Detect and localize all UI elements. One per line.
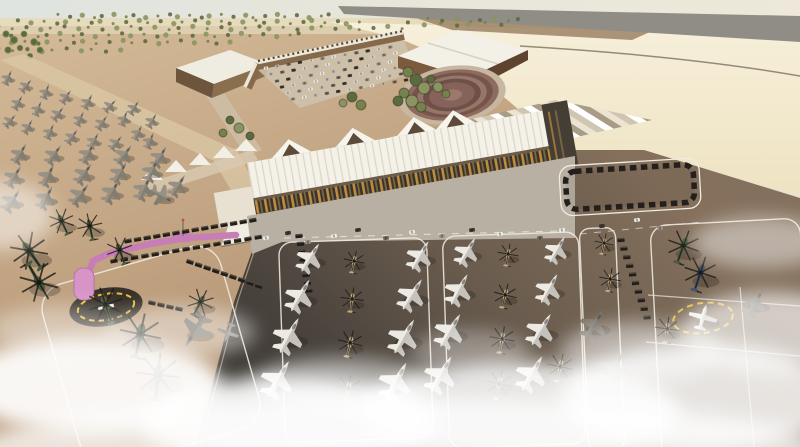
shrub-icon: [385, 24, 390, 29]
shrub-icon: [320, 25, 323, 28]
palm-tree-icon: [37, 47, 43, 53]
shrub-icon: [130, 41, 133, 44]
shrub-icon: [90, 21, 94, 25]
shrub-icon: [38, 27, 43, 32]
shrub-icon: [176, 26, 180, 30]
shrub-icon: [50, 49, 53, 52]
display-vehicle-icon: [626, 264, 633, 268]
car-icon: [599, 224, 605, 229]
shrub-icon: [56, 13, 59, 16]
shrub-icon: [206, 40, 209, 43]
shrub-icon: [118, 47, 123, 52]
shrub-icon: [16, 18, 20, 22]
tree-icon: [347, 92, 357, 102]
shrub-icon: [252, 16, 255, 19]
car-icon: [537, 236, 543, 241]
shrub-icon: [248, 34, 251, 37]
shrub-icon: [275, 12, 280, 17]
shrub-icon: [295, 28, 299, 32]
shrub-icon: [131, 13, 135, 17]
palm-tree-icon: [3, 31, 9, 37]
scene-canvas: [0, 0, 800, 447]
shrub-icon: [499, 23, 503, 27]
tree-icon: [339, 99, 347, 107]
shrub-icon: [143, 33, 146, 36]
shrub-icon: [79, 48, 84, 53]
shrub-icon: [484, 21, 487, 24]
shrub-icon: [323, 21, 326, 24]
shrub-icon: [125, 15, 128, 18]
shrub-icon: [254, 19, 257, 22]
shrub-icon: [128, 33, 133, 38]
shrub-icon: [266, 26, 271, 31]
shrub-icon: [138, 27, 142, 31]
shrub-icon: [108, 40, 112, 44]
shrub-icon: [289, 34, 292, 37]
shrub-icon: [244, 27, 247, 30]
palm-tree-icon: [21, 31, 27, 37]
display-vehicle-icon: [632, 281, 639, 285]
shrub-icon: [166, 41, 169, 44]
path-terminus-pad: [74, 268, 94, 300]
shrub-icon: [214, 42, 218, 46]
shrub-icon: [439, 22, 442, 25]
car-icon: [305, 240, 311, 245]
shrub-icon: [45, 33, 49, 37]
shrub-icon: [274, 34, 279, 39]
shrub-icon: [289, 22, 292, 25]
shrub-icon: [301, 20, 305, 24]
shrub-icon: [295, 13, 299, 17]
shrub-icon: [191, 34, 195, 38]
display-vehicle-icon: [295, 234, 302, 238]
shrub-icon: [93, 34, 98, 39]
shrub-icon: [68, 15, 72, 19]
shrub-icon: [178, 32, 181, 35]
display-vehicle-icon: [629, 272, 636, 276]
shrub-icon: [426, 17, 429, 20]
airshow-aerial-rendering: [0, 0, 800, 447]
tree-icon: [234, 123, 244, 133]
shrub-icon: [43, 20, 46, 23]
display-vehicle-icon: [297, 242, 304, 246]
shrub-icon: [65, 46, 69, 50]
shrub-icon: [358, 21, 361, 24]
shrub-icon: [261, 32, 265, 36]
shrub-icon: [455, 24, 459, 28]
shrub-icon: [262, 21, 266, 25]
car-icon: [657, 226, 663, 231]
shrub-icon: [168, 28, 171, 31]
palm-tree-icon: [5, 47, 11, 53]
shrub-icon: [77, 19, 80, 22]
tree-icon: [226, 116, 234, 124]
shrub-icon: [152, 25, 157, 30]
palm-tree-icon: [31, 39, 37, 45]
shrub-icon: [55, 22, 59, 26]
shrub-icon: [11, 49, 14, 52]
shrub-icon: [72, 34, 75, 37]
shrub-icon: [63, 19, 68, 24]
shrub-icon: [49, 27, 52, 30]
shrub-icon: [80, 39, 85, 44]
shrub-icon: [192, 40, 197, 45]
shrub-icon: [347, 25, 352, 30]
shrub-icon: [220, 20, 223, 23]
shrub-icon: [120, 31, 124, 35]
display-vehicle-icon: [617, 238, 624, 242]
shrub-icon: [516, 17, 520, 21]
shrub-icon: [188, 14, 191, 17]
shrub-icon: [90, 48, 93, 51]
shrub-icon: [156, 41, 161, 46]
shrub-icon: [97, 19, 102, 24]
shrub-icon: [478, 18, 482, 22]
shrub-icon: [204, 32, 209, 37]
shrub-icon: [193, 18, 197, 22]
shrub-icon: [200, 16, 204, 20]
shrub-icon: [179, 38, 183, 42]
shrub-icon: [401, 27, 404, 30]
display-vehicle-icon: [643, 315, 650, 319]
shrub-icon: [309, 25, 314, 30]
display-vehicle-icon: [635, 289, 642, 293]
shrub-icon: [181, 21, 184, 24]
shrub-icon: [228, 22, 232, 26]
tree-icon: [246, 132, 254, 140]
shrub-icon: [37, 35, 40, 38]
shrub-icon: [59, 39, 62, 42]
shrub-icon: [155, 35, 159, 39]
palm-tree-icon: [11, 37, 18, 44]
shrub-icon: [107, 34, 110, 37]
tree-icon: [393, 96, 403, 106]
tree-icon: [418, 82, 430, 94]
shrub-icon: [130, 25, 133, 28]
shrub-icon: [121, 38, 126, 43]
shrub-icon: [156, 15, 159, 18]
shrub-icon: [95, 42, 98, 45]
display-vehicle-icon: [640, 307, 647, 311]
shrub-icon: [25, 47, 29, 51]
shrub-icon: [219, 25, 223, 29]
shrub-icon: [507, 19, 510, 22]
shrub-icon: [240, 19, 245, 24]
cloud: [560, 322, 720, 382]
palm-tree-icon: [17, 45, 22, 50]
shrub-icon: [226, 33, 230, 37]
shrub-icon: [175, 14, 180, 19]
shrub-icon: [104, 50, 108, 54]
shrub-icon: [283, 15, 286, 18]
tree-icon: [219, 129, 227, 137]
shrub-icon: [263, 14, 267, 18]
shrub-icon: [112, 22, 115, 25]
shrub-icon: [422, 22, 427, 27]
shrub-icon: [220, 13, 223, 16]
tree-icon: [427, 75, 435, 83]
shrub-icon: [336, 19, 340, 23]
shrub-icon: [466, 21, 471, 26]
shrub-icon: [168, 12, 172, 16]
shrub-icon: [320, 15, 323, 18]
shrub-icon: [275, 19, 280, 24]
shrub-icon: [146, 21, 149, 24]
tree-icon: [442, 90, 450, 98]
display-vehicle-icon: [638, 298, 645, 302]
shrub-icon: [231, 15, 235, 19]
shrub-icon: [100, 28, 104, 32]
shrub-icon: [492, 16, 497, 21]
shrub-icon: [327, 12, 331, 16]
ring-plot-vehicles: [565, 164, 695, 210]
tree-icon: [356, 100, 366, 110]
shrub-icon: [143, 15, 148, 20]
shrub-icon: [297, 31, 301, 35]
tree-icon: [433, 82, 443, 92]
display-vehicle-icon: [623, 255, 630, 259]
shrub-icon: [206, 20, 211, 25]
flag-icon: [182, 219, 185, 222]
shrub-icon: [206, 27, 209, 30]
shrub-icon: [333, 27, 337, 31]
shrub-icon: [93, 16, 96, 19]
tree-icon: [416, 102, 426, 112]
shrub-icon: [227, 39, 232, 44]
shrub-icon: [80, 13, 85, 18]
shrub-icon: [358, 28, 361, 31]
shrub-icon: [28, 20, 33, 25]
shrub-icon: [124, 20, 128, 24]
shrub-icon: [137, 18, 142, 23]
shrub-icon: [171, 21, 176, 26]
shrub-icon: [243, 13, 248, 18]
shrub-icon: [239, 31, 244, 36]
shrub-icon: [159, 19, 163, 23]
shrub-icon: [87, 26, 90, 29]
shrub-icon: [190, 24, 195, 29]
shrub-icon: [213, 35, 216, 38]
shrub-icon: [143, 39, 147, 43]
cloud: [410, 330, 530, 374]
shrub-icon: [11, 27, 14, 30]
shrub-icon: [62, 24, 66, 28]
shrub-icon: [80, 32, 84, 36]
shrub-icon: [406, 20, 410, 24]
shrub-icon: [44, 39, 49, 44]
shrub-icon: [257, 24, 261, 28]
shrub-icon: [23, 40, 26, 43]
shrub-icon: [24, 25, 28, 29]
shrub-icon: [114, 25, 119, 30]
display-vehicle-icon: [620, 246, 627, 250]
shrub-icon: [163, 32, 168, 37]
shrub-icon: [76, 26, 81, 31]
shrub-icon: [282, 26, 285, 29]
shrub-icon: [207, 13, 212, 18]
shrub-icon: [100, 14, 104, 18]
shrub-icon: [371, 26, 375, 30]
shrub-icon: [228, 27, 233, 32]
shrub-icon: [111, 12, 116, 17]
shrub-icon: [454, 17, 459, 22]
shrub-icon: [72, 41, 76, 45]
shrub-icon: [57, 31, 62, 36]
shrub-icon: [309, 18, 314, 23]
